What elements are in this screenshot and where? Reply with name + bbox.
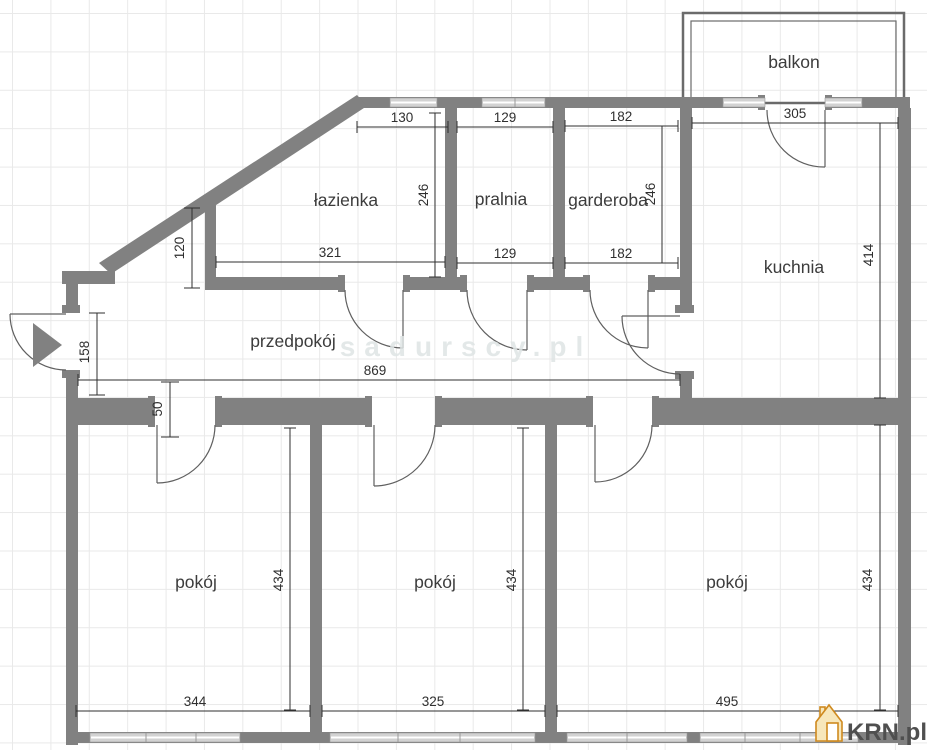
hallway-bottom-wall-1 bbox=[66, 398, 155, 425]
hallway-top-wall-2 bbox=[403, 277, 467, 290]
entrance-arrow-icon bbox=[33, 323, 62, 367]
door-room-left bbox=[157, 425, 215, 483]
laundry-wardrobe-wall bbox=[553, 108, 565, 277]
dim-lazienka-height: 246 bbox=[416, 184, 431, 207]
hallway-bottom-wall-4 bbox=[652, 398, 911, 425]
dim-przedpokoj-width: 869 bbox=[364, 363, 387, 378]
dim-pralnia-top: 129 bbox=[494, 110, 517, 125]
room-label-pokoj-middle: pokój bbox=[414, 572, 456, 592]
dim-pokoj-right-height: 434 bbox=[860, 568, 875, 591]
room-divider-left bbox=[310, 425, 322, 732]
hallway-bottom-wall-2 bbox=[215, 398, 372, 425]
dim-garderoba-top: 182 bbox=[610, 109, 633, 124]
dim-lazienka-bottom: 321 bbox=[319, 245, 342, 260]
dim-garderoba-bottom: 182 bbox=[610, 246, 633, 261]
dim-pokoj-left-height: 434 bbox=[271, 568, 286, 591]
dim-przedpokoj-height: 158 bbox=[77, 341, 92, 364]
dim-kuchnia-height: 414 bbox=[861, 243, 876, 266]
logo-text: KRN.pl bbox=[847, 719, 927, 746]
dim-pralnia-bottom: 129 bbox=[494, 246, 517, 261]
door-room-right bbox=[595, 425, 652, 482]
dim-wall-gap: 50 bbox=[150, 401, 165, 416]
entry-stub-wall bbox=[62, 271, 115, 284]
dim-pokoj-middle-width: 325 bbox=[422, 694, 445, 709]
room-label-przedpokoj: przedpokój bbox=[250, 331, 336, 351]
room-label-pralnia: pralnia bbox=[475, 189, 528, 209]
floor-plan: 130 129 182 305 321 129 182 869 344 325 … bbox=[0, 0, 927, 750]
room-labels: balkon łazienka pralnia garderoba kuchni… bbox=[175, 52, 824, 592]
right-wall bbox=[898, 108, 911, 745]
left-wall-lower bbox=[66, 372, 78, 745]
house-icon bbox=[816, 705, 842, 741]
room-label-balkon: balkon bbox=[768, 52, 820, 72]
dim-nook-height: 120 bbox=[172, 237, 187, 260]
dim-pokoj-middle-height: 434 bbox=[504, 568, 519, 591]
dim-balkon-door: 305 bbox=[784, 106, 807, 121]
hallway-top-wall-3 bbox=[527, 277, 590, 290]
room-label-lazienka: łazienka bbox=[314, 190, 378, 210]
kitchen-wall-upper bbox=[680, 97, 692, 313]
doors bbox=[10, 110, 825, 486]
room-label-pokoj-right: pokój bbox=[706, 572, 748, 592]
dim-pokoj-right-width: 495 bbox=[716, 694, 739, 709]
watermark: sadurscy.pl bbox=[340, 331, 593, 362]
bathroom-nook-wall bbox=[205, 196, 216, 290]
dim-pokoj-left-width: 344 bbox=[184, 694, 207, 709]
room-label-pokoj-left: pokój bbox=[175, 572, 217, 592]
bathroom-laundry-wall bbox=[445, 108, 457, 277]
room-label-kuchnia: kuchnia bbox=[764, 257, 825, 277]
door-wardrobe bbox=[590, 290, 648, 348]
door-room-middle bbox=[374, 425, 435, 486]
dim-lazienka-top: 130 bbox=[391, 110, 414, 125]
room-divider-right bbox=[545, 425, 557, 732]
hallway-top-wall-1 bbox=[205, 277, 345, 290]
room-label-garderoba: garderoba bbox=[568, 190, 648, 210]
floor-plan-canvas: 130 129 182 305 321 129 182 869 344 325 … bbox=[0, 0, 927, 750]
hallway-bottom-wall-3 bbox=[435, 398, 593, 425]
